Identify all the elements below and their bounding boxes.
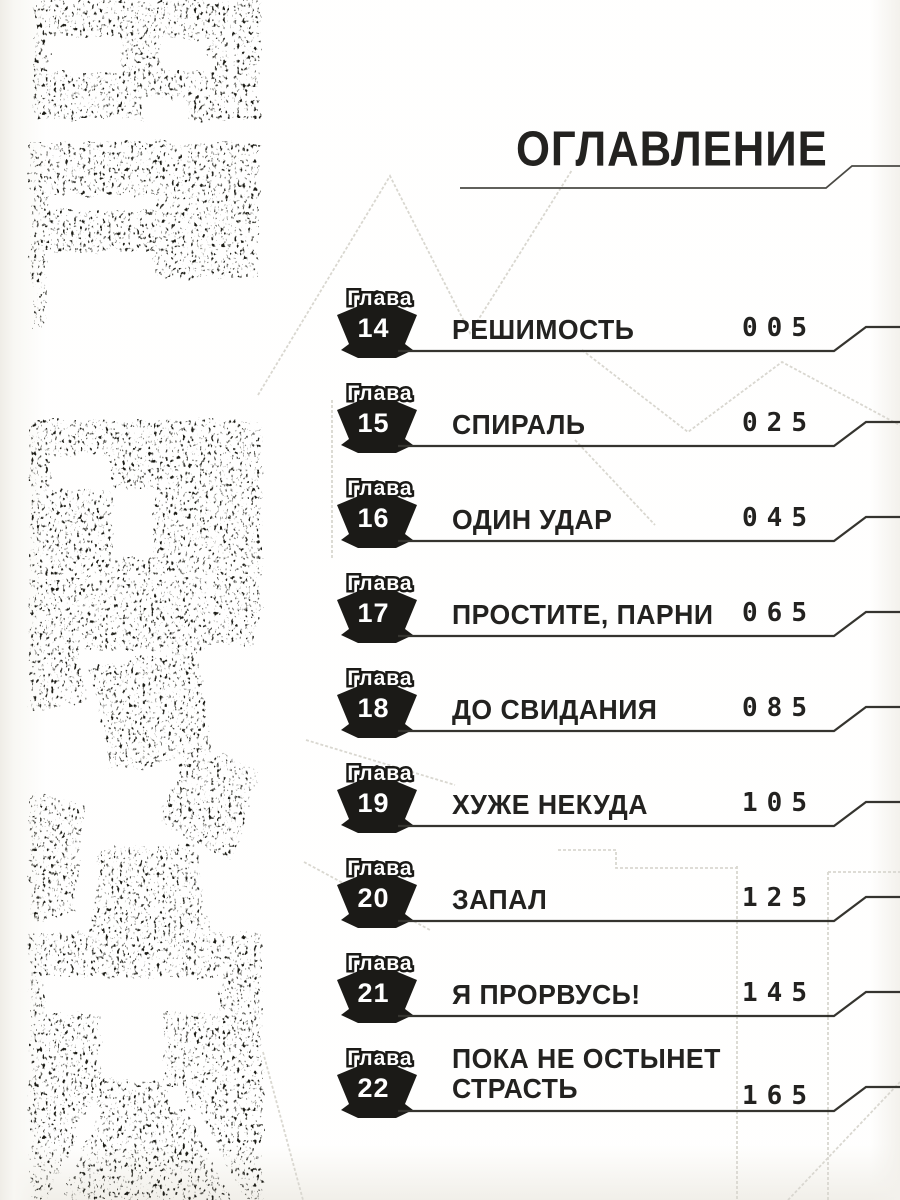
- toc-row: Глава Глава 22 ПОКА НЕ ОСТЫНЕТ СТРАСТЬ 1…: [0, 1048, 900, 1148]
- toc-row: Глава Глава 20 ЗАПАЛ 125: [0, 858, 900, 958]
- chapter-word: Глава: [334, 667, 426, 691]
- row-rule-line: [396, 514, 900, 544]
- toc-row: Глава Глава 17 ПРОСТИТЕ, ПАРНИ 065: [0, 573, 900, 673]
- chapter-word: Глава: [334, 1047, 426, 1071]
- chapter-word: Глава: [334, 857, 426, 881]
- row-rule-line: [396, 799, 900, 829]
- row-rule-line: [396, 1084, 900, 1114]
- chapter-word: Глава: [334, 952, 426, 976]
- chapter-word: Глава: [334, 287, 426, 311]
- chapter-word: Глава: [334, 572, 426, 596]
- row-rule-line: [396, 704, 900, 734]
- header-rule-line: [458, 160, 900, 194]
- toc-row: Глава Глава 14 РЕШИМОСТЬ 005: [0, 288, 900, 388]
- row-rule-line: [396, 894, 900, 924]
- row-rule-line: [396, 419, 900, 449]
- table-of-contents: ОГЛАВЛЕНИЕ Глава Глава 14 РЕШИМОСТЬ 005 …: [0, 0, 900, 1200]
- toc-row: Глава Глава 15 СПИРАЛЬ 025: [0, 383, 900, 483]
- chapter-word: Глава: [334, 382, 426, 406]
- toc-row: Глава Глава 16 ОДИН УДАР 045: [0, 478, 900, 578]
- row-rule-line: [396, 324, 900, 354]
- chapter-word: Глава: [334, 477, 426, 501]
- chapter-word: Глава: [334, 762, 426, 786]
- toc-row: Глава Глава 18 ДО СВИДАНИЯ 085: [0, 668, 900, 768]
- toc-row: Глава Глава 21 Я ПРОРВУСЬ! 145: [0, 953, 900, 1053]
- row-rule-line: [396, 609, 900, 639]
- row-rule-line: [396, 989, 900, 1019]
- toc-row: Глава Глава 19 ХУЖЕ НЕКУДА 105: [0, 763, 900, 863]
- chapter-title-line1: ПОКА НЕ ОСТЫНЕТ: [452, 1043, 721, 1074]
